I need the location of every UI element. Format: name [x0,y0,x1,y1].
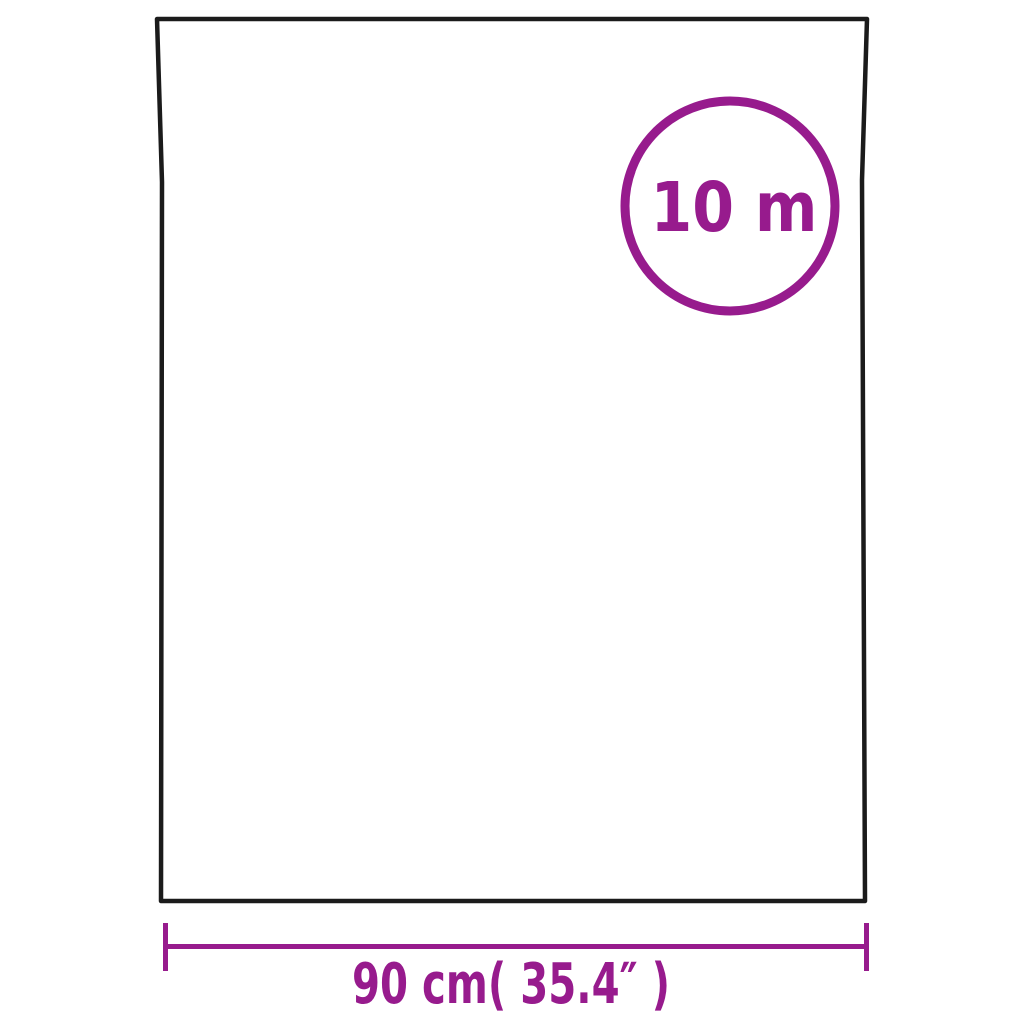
length-badge: 10 m [625,101,835,311]
product-dimension-diagram: 10 m 90 cm( 35.4″ ) [0,0,1024,1024]
width-dimension-label: 90 cm( 35.4″ ) [352,952,670,1017]
width-dimension: 90 cm( 35.4″ ) [166,923,867,1017]
length-badge-label: 10 m [651,168,818,248]
diagram-canvas: 10 m 90 cm( 35.4″ ) [0,0,1024,1024]
